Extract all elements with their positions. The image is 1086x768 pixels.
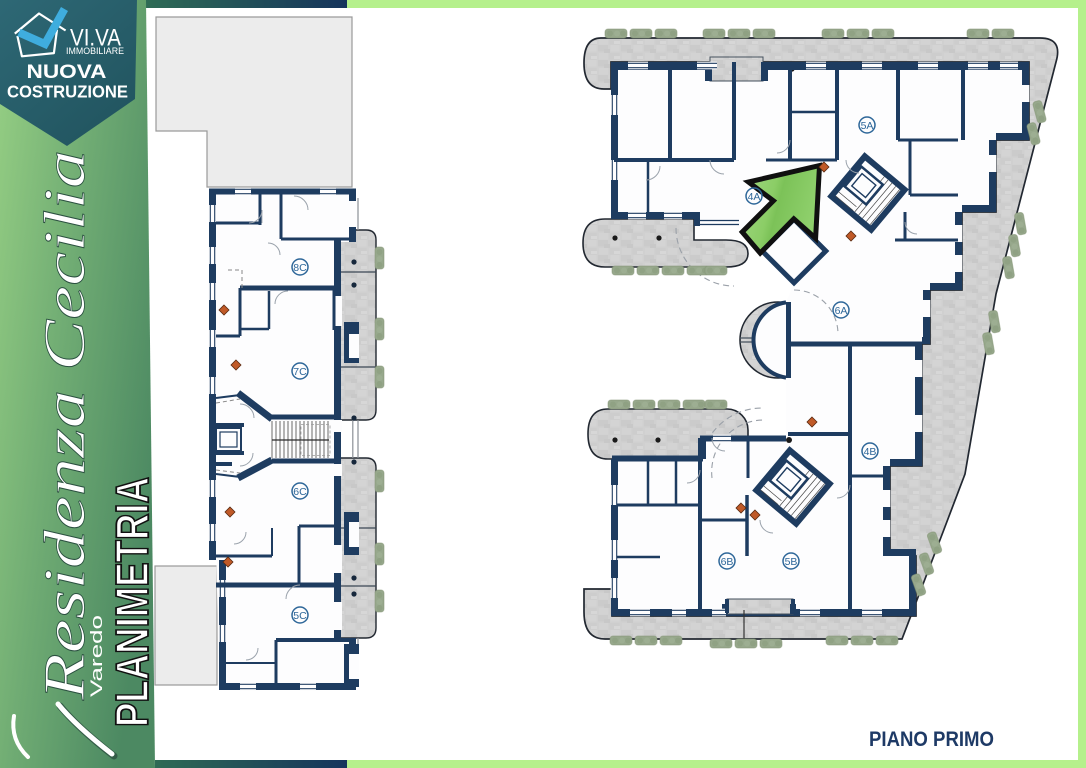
svg-text:PIANO PRIMO: PIANO PRIMO [869,728,994,751]
svg-text:Varedo: Varedo [88,615,106,697]
svg-text:NUOVA: NUOVA [27,62,107,83]
svg-text:COSTRUZIONE: COSTRUZIONE [7,82,128,102]
svg-text:PLANIMETRIA: PLANIMETRIA [106,477,158,727]
svg-text:8C: 8C [293,262,307,274]
svg-text:4B: 4B [864,446,877,458]
svg-text:7C: 7C [293,366,307,378]
svg-text:6C: 6C [293,486,307,498]
svg-text:IMMOBILIARE: IMMOBILIARE [66,46,124,57]
svg-text:5B: 5B [785,556,798,568]
svg-text:6B: 6B [721,556,734,568]
svg-text:5A: 5A [861,120,874,132]
svg-text:5C: 5C [293,610,307,622]
svg-text:6A: 6A [835,305,848,317]
svg-text:4A: 4A [748,191,761,203]
